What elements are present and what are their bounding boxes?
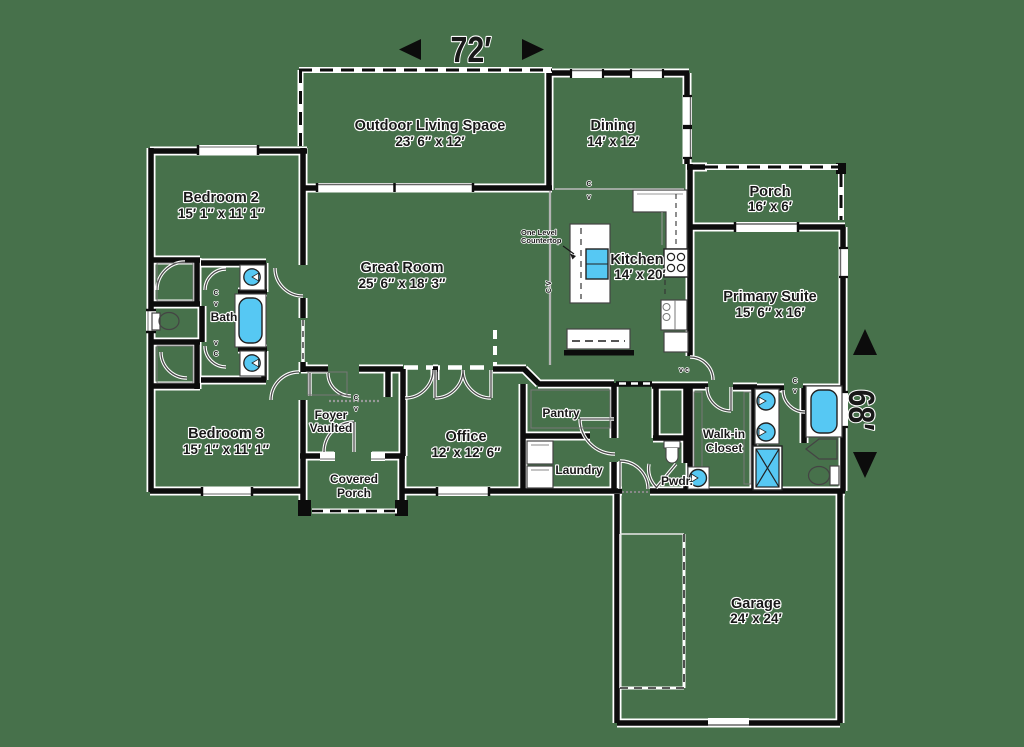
svg-text:C: C [213, 351, 218, 358]
svg-text:15′ 1″ x 11′ 1″: 15′ 1″ x 11′ 1″ [183, 442, 270, 457]
svg-text:v: v [587, 194, 591, 201]
svg-text:v: v [354, 406, 358, 413]
svg-text:C: C [792, 378, 797, 385]
svg-text:Kitchen: Kitchen [610, 252, 663, 268]
svg-text:23′ 6″ x 12′: 23′ 6″ x 12′ [395, 134, 464, 149]
svg-text:24′ x 24′: 24′ x 24′ [730, 611, 782, 626]
svg-text:12′ x 12′ 6″: 12′ x 12′ 6″ [431, 445, 501, 460]
svg-text:Garage: Garage [731, 596, 781, 612]
svg-text:Countertop: Countertop [521, 236, 562, 245]
svg-text:72′: 72′ [451, 29, 492, 70]
svg-text:16′ x 6′: 16′ x 6′ [748, 199, 792, 214]
svg-text:Dining: Dining [590, 118, 635, 134]
svg-text:v: v [214, 340, 218, 347]
svg-text:C: C [213, 290, 218, 297]
svg-text:Primary Suite: Primary Suite [723, 289, 817, 305]
svg-text:Outdoor Living Space: Outdoor Living Space [355, 118, 506, 134]
svg-text:Great Room: Great Room [361, 260, 444, 276]
svg-text:Bedroom 3: Bedroom 3 [188, 426, 264, 442]
svg-text:Pantry: Pantry [542, 406, 580, 420]
svg-text:25′ 6″ x 18′ 3″: 25′ 6″ x 18′ 3″ [359, 276, 446, 291]
svg-text:C: C [586, 181, 591, 188]
svg-text:Closet: Closet [706, 441, 743, 455]
svg-text:Covered: Covered [330, 472, 378, 486]
svg-text:Office: Office [445, 429, 486, 445]
svg-text:Bath: Bath [211, 310, 238, 324]
svg-text:Walk-in: Walk-in [703, 427, 745, 441]
svg-text:Porch: Porch [337, 486, 371, 500]
svg-text:15′ 1″ x 11′ 1″: 15′ 1″ x 11′ 1″ [178, 206, 265, 221]
svg-text:Pwdr.: Pwdr. [661, 474, 693, 488]
svg-text:Vaulted: Vaulted [310, 421, 353, 435]
svg-text:Laundry: Laundry [555, 463, 603, 477]
svg-text:v-c: v-c [679, 367, 689, 374]
svg-text:Bedroom 2: Bedroom 2 [183, 190, 259, 206]
svg-text:v: v [793, 388, 797, 395]
svg-text:Foyer: Foyer [315, 408, 348, 422]
svg-text:Porch: Porch [749, 184, 790, 200]
svg-text:14′ x 12′: 14′ x 12′ [587, 134, 639, 149]
svg-text:14′ x 20′: 14′ x 20′ [614, 267, 666, 282]
svg-text:68′: 68′ [841, 390, 882, 431]
svg-text:15′ 6″ x 16′: 15′ 6″ x 16′ [735, 305, 804, 320]
svg-text:C-V: C-V [546, 281, 553, 293]
svg-text:C: C [353, 395, 358, 402]
svg-text:v: v [214, 301, 218, 308]
